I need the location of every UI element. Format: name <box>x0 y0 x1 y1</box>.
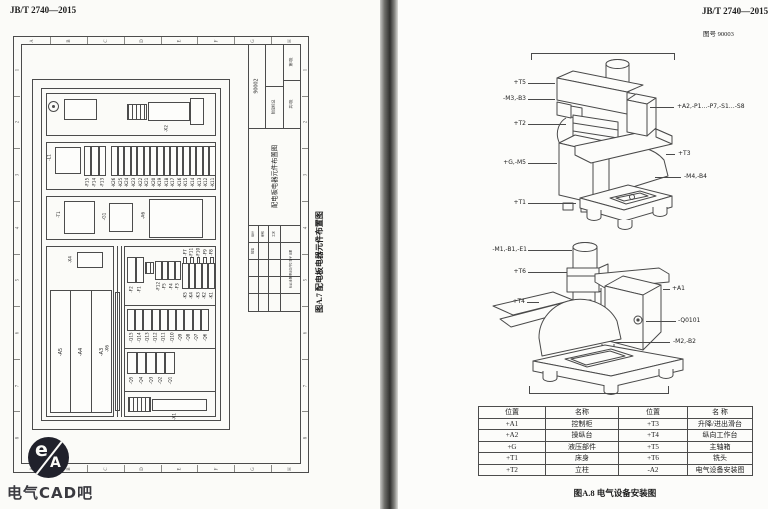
ruler-cell: B <box>50 37 87 44</box>
callout-m3b3: -M3,-B3 <box>486 95 526 102</box>
plate-separator <box>125 305 215 306</box>
fuse-row-short: -F12 -F5 -F4 -F3 <box>155 261 181 293</box>
machine-isometric-upper <box>460 48 690 238</box>
ruler-cell: E <box>161 465 198 472</box>
machine-isometric-lower <box>455 240 705 395</box>
ruler-cell: G <box>234 37 271 44</box>
table-cell: -A2 <box>619 464 688 476</box>
component-box <box>165 352 175 374</box>
component-label: -Q10 <box>168 331 176 344</box>
component-column: -Q8 <box>184 309 192 344</box>
ruler-cell: C <box>87 37 124 44</box>
ruler-cell: 1 <box>14 44 20 96</box>
component-label-top: -F10 <box>195 247 202 257</box>
ruler-cell: 5 <box>302 254 308 307</box>
component-column: -F11 -K4 <box>189 247 196 302</box>
table-cell: 立柱 <box>546 464 619 476</box>
ruler-top: ABCDEFGH <box>14 37 308 44</box>
component-label: -Q2 <box>156 374 166 387</box>
table-cell: 控制柜 <box>546 418 619 430</box>
ruler-cell: 6 <box>302 306 308 359</box>
component-box <box>152 309 160 331</box>
table-cell: 纵向工作台 <box>688 430 753 442</box>
component-label: -Q7 <box>193 331 201 344</box>
component-label: -Q4 <box>137 374 147 387</box>
component-box <box>195 263 202 289</box>
ruler-cell: H <box>271 465 308 472</box>
table-row: +T2 立柱 -A2 电气设备安装图 <box>479 464 753 476</box>
component-box <box>148 102 190 121</box>
leader-line <box>527 302 539 303</box>
revision-row-cell: 标记 处数 更改文件号 签字 日期 <box>281 227 300 311</box>
component-box <box>208 263 215 289</box>
component-label: -K13 <box>196 176 203 189</box>
component-column: -F1 <box>136 257 145 299</box>
callout-t5: +T5 <box>498 79 526 86</box>
leader-line <box>528 124 566 125</box>
ruler-cell: F <box>197 465 234 472</box>
relay-row-top: -K26 -K25 -K24 -K23 -K22 -K21 -K20 <box>111 146 216 190</box>
component-box <box>127 352 137 374</box>
leader-line <box>528 250 572 251</box>
component-label: -Q6 <box>201 331 209 344</box>
signature-cell: 审核 <box>258 226 268 242</box>
standard-number-left: JB/T 2740—2015 <box>10 5 76 15</box>
table-header-cell: 名称 <box>546 407 619 419</box>
component-box <box>189 263 196 289</box>
table-row: +A2 操纵台 +T4 纵向工作台 <box>479 430 753 442</box>
component-column: -Q4 <box>137 352 147 387</box>
ruler-cell: 8 <box>302 411 308 464</box>
ruler-cell: 4 <box>302 201 308 254</box>
breaker-row-2: -Q5 -Q4 -Q3 -Q2 -Q1 <box>127 352 175 387</box>
ruler-cell: 5 <box>14 254 20 307</box>
component-box <box>176 309 184 331</box>
component-label: -F12 <box>155 280 162 293</box>
rack-column: -A4 <box>71 291 91 412</box>
drawing-title-cell: 配电板电器元件布置图 <box>248 128 301 225</box>
callout-t1: +T1 <box>502 199 526 206</box>
signature-cell: 批准 <box>248 243 258 259</box>
component-label: -K4 <box>189 289 196 302</box>
ruler-cell: 2 <box>302 96 308 149</box>
component-label-x1: -X1 <box>170 408 180 424</box>
component-box <box>135 309 143 331</box>
component-label: -K18 <box>164 176 171 189</box>
component-label: -K22 <box>137 176 144 189</box>
leader-line <box>528 99 555 100</box>
table-row: +G 液压部件 +T5 主轴箱 <box>479 441 753 453</box>
component-label-top: -F8 <box>208 247 215 257</box>
component-box <box>160 309 168 331</box>
ruler-cell: 4 <box>14 201 20 254</box>
component-box <box>202 263 209 289</box>
component-label: -Q12 <box>152 331 160 344</box>
drawing-number-cell: 90002 <box>248 44 265 128</box>
component-label-x4: -X4 <box>66 251 76 267</box>
component-column: -Q2 <box>156 352 166 387</box>
leader-line <box>655 177 681 178</box>
table-cell: +T3 <box>619 418 688 430</box>
component-column: -Q13 <box>143 309 151 344</box>
component-column: -Q3 <box>146 352 156 387</box>
component-box <box>55 147 81 174</box>
equipment-table: 位置名称位置名 称 +A1 控制柜 +T3 升降/进出滑台 +A2 操纵台 +T… <box>478 406 753 476</box>
component-column: -Q6 <box>201 309 209 344</box>
component-box <box>77 252 103 268</box>
component-label: -Q11 <box>160 331 168 344</box>
component-box <box>201 309 209 331</box>
watermark-logo: e A <box>28 437 69 478</box>
table-cell: +G <box>479 441 546 453</box>
component-column: -F3 <box>175 261 182 293</box>
component-box <box>146 352 156 374</box>
table-row: +T1 床身 +T6 铣头 <box>479 453 753 465</box>
table-cell: 电气设备安装图 <box>688 464 753 476</box>
component-label: -F3 <box>175 280 182 293</box>
table-cell: +T1 <box>479 453 546 465</box>
component-column: -F13 <box>99 146 106 190</box>
component-label: -Q8 <box>184 331 192 344</box>
figure-a8-caption: 图A.8 电气设备安装图 <box>478 487 752 499</box>
component-column: -F14 <box>91 146 98 190</box>
component-label-top: -F11 <box>189 247 196 257</box>
callout-m4b4: -M4,-B4 <box>684 173 707 180</box>
table-cell: 操纵台 <box>546 430 619 442</box>
table-row: +A1 控制柜 +T3 升降/进出滑台 <box>479 418 753 430</box>
ruler-cell: H <box>271 37 308 44</box>
component-label: -K1 <box>208 289 215 302</box>
panel-divider <box>121 246 122 417</box>
callout-a2: +A2,-P1…-P7,-S1…-S8 <box>677 103 745 110</box>
panel-divider <box>117 246 118 417</box>
component-column: -F15 <box>84 146 91 190</box>
component-column: -Q15 <box>127 309 135 344</box>
component-box <box>127 257 136 283</box>
component-column: -F10 -K3 <box>195 247 202 302</box>
terminal-comb <box>128 397 151 412</box>
component-label-l1: -L1 <box>44 149 54 165</box>
component-label-g1: -G1 <box>99 208 109 224</box>
leader-line <box>663 289 670 290</box>
ruler-cell: D <box>124 465 161 472</box>
figure-a7-caption: 图A.7 配电板电器元件布置图 <box>314 207 326 317</box>
component-label-a6: -A6 <box>139 207 149 223</box>
ruler-cell: 7 <box>14 359 20 412</box>
leader-line <box>650 107 674 108</box>
component-label: -Q1 <box>165 374 175 387</box>
component-column: -Q14 <box>135 309 143 344</box>
component-box <box>64 99 97 120</box>
component-label: -F13 <box>99 176 106 189</box>
terminal-comb <box>127 104 147 120</box>
table-cell: 床身 <box>546 453 619 465</box>
callout-t4: +T4 <box>501 298 525 305</box>
table-cell: +T4 <box>619 430 688 442</box>
component-box <box>143 309 151 331</box>
component-box <box>156 352 166 374</box>
table-cell: 铣头 <box>688 453 753 465</box>
ruler-cell: A <box>14 37 50 44</box>
callout-t2: +T2 <box>502 120 526 127</box>
table-header-cell: 位置 <box>479 407 546 419</box>
table-cell: 升降/进出滑台 <box>688 418 753 430</box>
component-label-top: -F7 <box>182 247 189 257</box>
component-box <box>64 201 95 234</box>
component-label: -Q15 <box>127 331 135 344</box>
ruler-cell: 3 <box>302 148 308 201</box>
ruler-cell: 3 <box>14 148 20 201</box>
sheet-total-cell: 共1张 <box>283 80 301 128</box>
component-label: -Q5 <box>127 374 137 387</box>
component-box <box>99 146 106 176</box>
component-box <box>149 199 203 238</box>
book-spine <box>380 0 398 509</box>
table-header-cell: 位置 <box>619 407 688 419</box>
fuse-row-top: -F15 -F14 -F13 <box>84 146 106 190</box>
component-label: -K3 <box>195 289 202 302</box>
relay-group: -F7 -K5 -F11 -K4 -F10 -K3 -F9 -K2 -F <box>182 247 215 302</box>
ruler-cell: 6 <box>14 306 20 359</box>
left-page: JB/T 2740—2015 ABCDEFGH ABCDEFGH 1234567… <box>0 0 384 509</box>
callout-t3: +T3 <box>678 150 691 157</box>
component-label: -K11 <box>209 176 216 189</box>
component-label: -F1 <box>136 283 145 296</box>
logo-letter-e: e <box>35 439 48 461</box>
callout-t6: +T6 <box>502 268 526 275</box>
component-box <box>127 309 135 331</box>
component-column: -F2 <box>127 257 136 299</box>
stage-mark-cell: 阶段标记 <box>265 86 283 128</box>
table-cell: +T6 <box>619 453 688 465</box>
component-column: -F8 -K1 <box>208 247 215 302</box>
component-label-top: -F9 <box>202 247 209 257</box>
component-box <box>91 146 98 176</box>
callout-a1: +A1 <box>672 285 685 292</box>
ruler-cell: F <box>197 37 234 44</box>
component-label: -Q3 <box>146 374 156 387</box>
component-box <box>182 263 189 289</box>
component-label-x2: -X2 <box>162 120 172 136</box>
component-label: -Q13 <box>143 331 151 344</box>
sheet-no-cell: 第1张 <box>283 44 301 80</box>
ruler-cell: 2 <box>14 96 20 149</box>
table-header-cell: 名 称 <box>688 407 753 419</box>
component-label: -K5 <box>182 289 189 302</box>
signature-cell: 工艺 <box>268 226 280 242</box>
component-label-t1: -T1 <box>54 206 64 222</box>
ruler-cell: 1 <box>302 44 308 96</box>
callout-q0101: -Q0101 <box>678 317 700 324</box>
component-box <box>209 146 216 176</box>
logo-letter-a: A <box>50 455 61 471</box>
table-cell: 液压部件 <box>546 441 619 453</box>
drawing-doc-number: 图号 90003 <box>703 28 734 38</box>
component-column: -F9 -K2 <box>202 247 209 302</box>
component-label: -F15 <box>84 176 91 189</box>
leader-line <box>528 83 555 84</box>
leader-line <box>528 272 567 273</box>
component-column: -F7 -K5 <box>182 247 189 302</box>
ruler-cell: 8 <box>14 411 20 464</box>
component-label-x6: -X6 <box>103 340 113 356</box>
component-column: -Q10 <box>168 309 176 344</box>
ruler-left: 12345678 <box>14 44 20 464</box>
breaker-row-1: -Q15 -Q14 -Q13 -Q12 -Q11 -Q10 -Q9 <box>127 309 209 344</box>
callout-m2b2: -M2,-B2 <box>673 338 696 345</box>
component-box <box>168 309 176 331</box>
standard-number-right: JB/T 2740—2015 <box>702 6 768 16</box>
ruler-right: 12345678 <box>302 44 308 464</box>
component-box <box>84 146 91 176</box>
component-label: -Q14 <box>135 331 143 344</box>
plate-separator <box>125 348 215 349</box>
terminal-comb <box>145 262 154 274</box>
plate-separator <box>125 391 215 392</box>
table-cell: 主轴箱 <box>688 441 753 453</box>
component-column: -Q11 <box>160 309 168 344</box>
table-cell: +A2 <box>479 430 546 442</box>
table-cell: +T5 <box>619 441 688 453</box>
component-label: -K20 <box>150 176 157 189</box>
component-column: -K11 <box>209 146 216 190</box>
component-label: -F14 <box>91 176 98 189</box>
ruler-cell: E <box>161 37 198 44</box>
table-header-row: 位置名称位置名 称 <box>479 407 753 419</box>
component-label: -Q9 <box>176 331 184 344</box>
ruler-cell: D <box>124 37 161 44</box>
component-box <box>184 309 192 331</box>
signature-cell: 设计 <box>248 226 258 242</box>
component-box <box>109 203 133 232</box>
component-column: -Q9 <box>176 309 184 344</box>
rack-column: -A5 <box>51 291 71 412</box>
ruler-cell: C <box>87 465 124 472</box>
component-label: -K2 <box>202 289 209 302</box>
component-column: -Q5 <box>127 352 137 387</box>
leader-line <box>528 163 557 164</box>
component-box <box>193 309 201 331</box>
component-column: -Q1 <box>165 352 175 387</box>
leader-line <box>614 342 670 343</box>
table-cell: +T2 <box>479 464 546 476</box>
leader-line <box>666 154 675 155</box>
component-column: -Q12 <box>152 309 160 344</box>
ruler-cell: G <box>234 465 271 472</box>
component-box <box>190 98 204 125</box>
callout-m1b1e1: -M1,-B1,-E1 <box>483 246 527 253</box>
component-column: -Q7 <box>193 309 201 344</box>
component-box <box>137 352 147 374</box>
dimension-bracket-bottom <box>529 386 669 394</box>
watermark-text: 电气CAD吧 <box>7 482 93 503</box>
callout-gm5: +G,-M5 <box>490 159 526 166</box>
component-label: -F2 <box>127 283 136 296</box>
scanned-standard-spread: JB/T 2740—2015 ABCDEFGH ABCDEFGH 1234567… <box>0 0 768 509</box>
fuse-row-tall: -F2 -F1 <box>127 257 144 299</box>
leader-line <box>528 203 576 204</box>
component-box <box>136 257 145 283</box>
ruler-cell: 7 <box>302 359 308 412</box>
table-cell: +A1 <box>479 418 546 430</box>
indicator-dot <box>52 105 55 108</box>
component-box <box>175 261 182 280</box>
leader-line <box>646 321 676 322</box>
